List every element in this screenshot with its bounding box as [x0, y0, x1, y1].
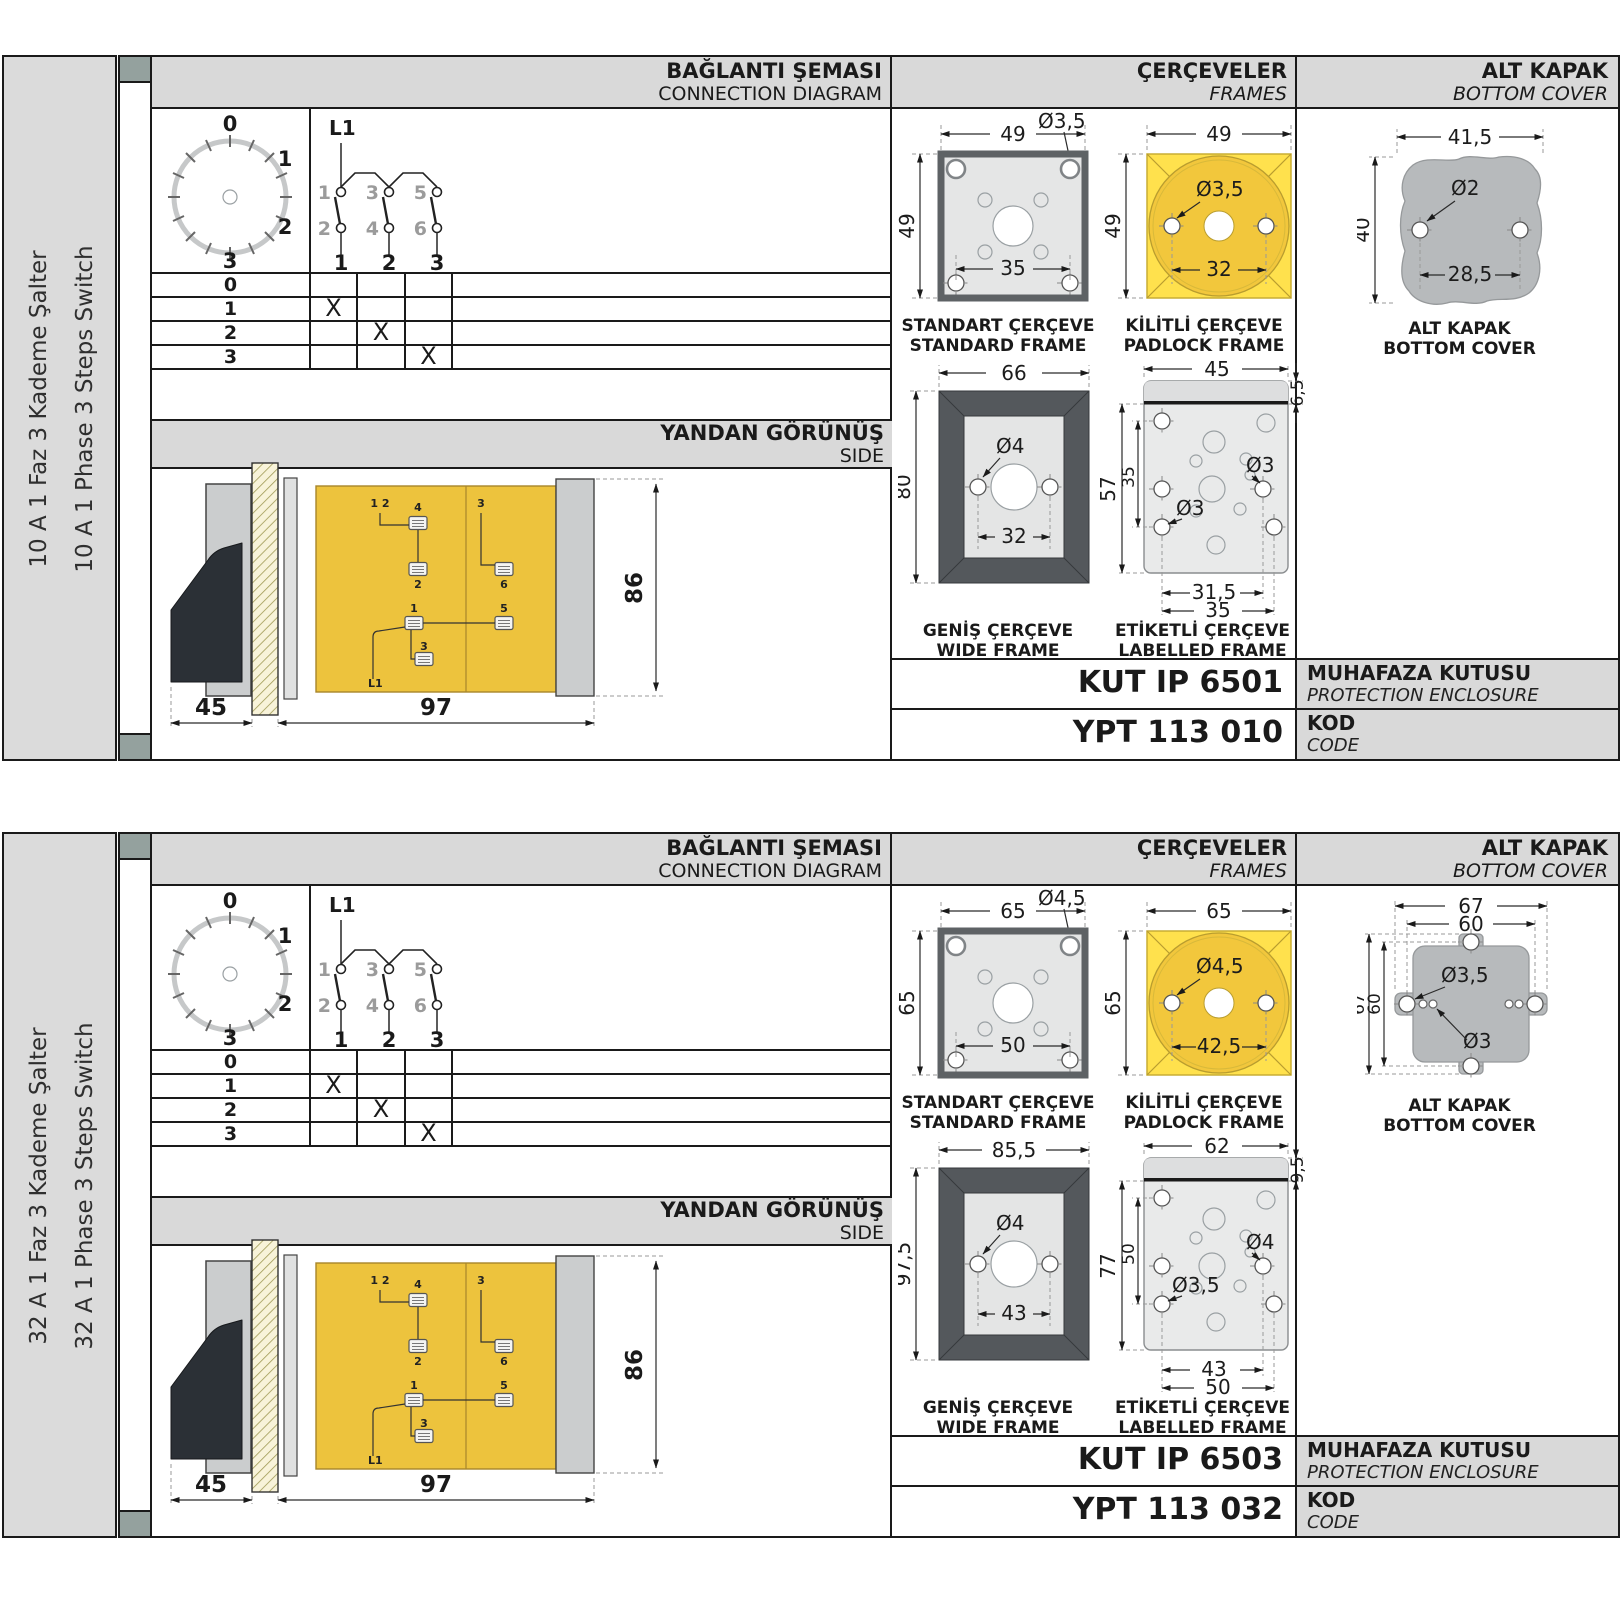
body-label-4: 4 [414, 1278, 422, 1291]
dim-width: 49 [1206, 122, 1231, 146]
dim-hole: Ø3,5 [1038, 112, 1086, 133]
dim-hole-bot: Ø3 [1176, 496, 1204, 520]
contact-3: 3 [430, 1028, 445, 1049]
terminal-5: 5 [414, 182, 427, 204]
dim-height: 49 [898, 213, 919, 238]
header-frames-tr: ÇERÇEVELER [892, 836, 1287, 861]
body-label-1: 1 [410, 602, 418, 615]
row-pos: 0 [152, 1051, 311, 1073]
contact-2: 2 [382, 251, 397, 272]
dim-span: 50 [1000, 1033, 1025, 1057]
header-frames: ÇERÇEVELER FRAMES [892, 59, 1287, 105]
wide-frame-drawing: 66 Ø4 80 32 [898, 357, 1098, 619]
side-view-drawing: 1 2 3 4 2 6 1 5 3 L1 86 45 97 [156, 461, 696, 757]
frame-caption-en: PADLOCK FRAME [1104, 1113, 1304, 1133]
dim-height: 86 [622, 572, 648, 604]
enclosure-code: KUT IP 6501 [890, 660, 1297, 708]
cover-caption-tr: ALT KAPAK [1357, 319, 1562, 339]
terminal-3: 3 [366, 182, 379, 204]
dim-span: 32 [1001, 524, 1026, 548]
binder-strip [118, 55, 152, 761]
standard-frame-block: 49 Ø3,5 49 35 STANDART ÇERÇEVESTANDARD F… [898, 112, 1098, 356]
dial-center [223, 190, 237, 204]
body-label-L1: L1 [368, 1454, 383, 1467]
dim-hole: Ø4,5 [1038, 889, 1086, 910]
panel-wall-hatch [252, 463, 278, 715]
dim-band: 6,5 [1288, 379, 1305, 406]
shaft-hole [1204, 988, 1234, 1018]
body-label-6: 6 [500, 578, 508, 591]
terminal-2: 2 [318, 995, 331, 1017]
code-label: KOD CODE [1297, 710, 1618, 759]
header-connection: BAĞLANTI ŞEMASI CONNECTION DIAGRAM [152, 59, 882, 105]
header-connection-en: CONNECTION DIAGRAM [152, 861, 882, 882]
sidebar: 10 A 1 Faz 3 Kademe Şalter 10 A 1 Phase … [2, 55, 117, 761]
side-title-tr: YANDAN GÖRÜNÜŞ [152, 1198, 884, 1223]
table-row: 3X [152, 1123, 892, 1147]
mark-2 [358, 1075, 406, 1097]
body-label-4: 4 [414, 501, 422, 514]
padlock-frame-drawing: 65 Ø4,5 65 42,5 [1104, 889, 1304, 1091]
registration-square-top [120, 57, 150, 83]
dim-height: 65 [898, 990, 919, 1015]
panel-wall-hatch [252, 1240, 278, 1492]
table-row: 0 [152, 1051, 892, 1075]
enclosure-row: KUT IP 6503 MUHAFAZA KUTUSU PROTECTION E… [890, 1435, 1618, 1485]
labelled-frame-block: 62 9,5 77 50 Ø4 Ø3,5 [1100, 1134, 1305, 1438]
row-pos: 3 [152, 346, 311, 368]
dim-width: 49 [1000, 122, 1025, 146]
switch-body [316, 1263, 556, 1469]
contact-1: 1 [334, 251, 349, 272]
dial-pos-0: 0 [223, 112, 238, 136]
body-label-3bot: 3 [420, 640, 428, 653]
phase-label: L1 [329, 893, 356, 917]
cover-caption-en: BOTTOM COVER [1357, 1116, 1562, 1136]
panel-main: BAĞLANTI ŞEMASI CONNECTION DIAGRAM ÇERÇE… [150, 55, 1620, 761]
dial-pos-1: 1 [278, 924, 293, 948]
body-label-5: 5 [500, 1379, 508, 1392]
end-plate [556, 1256, 594, 1473]
dial-pos-2: 2 [278, 992, 293, 1016]
label-band [1144, 1158, 1288, 1178]
switch-dial: 0 1 2 3 [152, 886, 309, 1049]
table-row: 1X [152, 298, 892, 322]
mark-1 [311, 274, 358, 296]
frame-caption-en: PADLOCK FRAME [1104, 336, 1304, 356]
dim-width: 65 [1206, 899, 1231, 923]
phase-label: L1 [329, 116, 356, 140]
panel-main: BAĞLANTI ŞEMASI CONNECTION DIAGRAM ÇERÇE… [150, 832, 1620, 1538]
dim-hole: Ø4,5 [1196, 954, 1244, 978]
mark-3 [406, 322, 453, 344]
dial-pos-1: 1 [278, 147, 293, 171]
enclosure-label-en: PROTECTION ENCLOSURE [1307, 685, 1618, 706]
wide-frame-block: 85,5 Ø4 97,5 43 GENİŞ ÇERÇEVEWIDE FRAME [898, 1134, 1098, 1438]
body-label-3top: 3 [477, 1274, 485, 1287]
dim-height: 77 [1100, 1253, 1120, 1278]
datasheet-page: 10 A 1 Faz 3 Kademe Şalter 10 A 1 Phase … [0, 0, 1623, 1623]
code-label-en: CODE [1307, 735, 1618, 756]
body-label-3top: 3 [477, 497, 485, 510]
dim-hole: Ø3,5 [1196, 177, 1244, 201]
body-label-12: 1 2 [370, 1274, 389, 1287]
cover-caption-en: BOTTOM COVER [1357, 339, 1562, 359]
mark-2: X [358, 322, 406, 344]
shaft-hole [1204, 211, 1234, 241]
connection-column: 0 1 2 3 L1 1 2 3 4 5 [152, 109, 892, 759]
registration-square-top [120, 834, 150, 860]
dim-hole-mid: Ø3 [1246, 453, 1274, 477]
product-title-en: 10 A 1 Phase 3 Steps Switch [66, 61, 104, 757]
frame-caption-tr: STANDART ÇERÇEVE [898, 316, 1098, 336]
product-title-en: 32 A 1 Phase 3 Steps Switch [66, 838, 104, 1534]
header-connection-tr: BAĞLANTI ŞEMASI [152, 836, 882, 861]
shaft-hole [991, 464, 1037, 510]
dim-depth-a: 45 [195, 1472, 227, 1498]
mark-2 [358, 1051, 406, 1073]
mark-2: X [358, 1099, 406, 1121]
frame-caption-tr: GENİŞ ÇERÇEVE [898, 1398, 1098, 1418]
switch-handle [171, 1320, 242, 1459]
label-band [1144, 381, 1288, 401]
enclosure-row: KUT IP 6501 MUHAFAZA KUTUSU PROTECTION E… [890, 658, 1618, 708]
terminal-4: 4 [366, 218, 379, 240]
wide-frame-block: 66 Ø4 80 32 GENİŞ ÇERÇEVEWIDE FRAME [898, 357, 1098, 661]
code-label-en: CODE [1307, 1512, 1618, 1533]
dim-span: 32 [1206, 257, 1231, 281]
contact-2: 2 [382, 1028, 397, 1049]
end-plate [556, 479, 594, 696]
dim-height: 97,5 [898, 1242, 915, 1287]
dim-span: 28,5 [1448, 262, 1493, 286]
dial-center [223, 967, 237, 981]
dim-width: 85,5 [992, 1138, 1037, 1162]
mark-3 [406, 1051, 453, 1073]
contact-1: 1 [334, 1028, 349, 1049]
mark-3 [406, 1075, 453, 1097]
header-frames: ÇERÇEVELER FRAMES [892, 836, 1287, 882]
dim-hole: Ø4 [996, 434, 1024, 458]
dim-height-inner: 60 [1365, 993, 1385, 1015]
order-code: YPT 113 010 [890, 710, 1297, 759]
shaft-hole [993, 983, 1033, 1023]
enclosure-label-tr: MUHAFAZA KUTUSU [1307, 662, 1618, 685]
row-pos: 3 [152, 1123, 311, 1145]
frame-caption-tr: STANDART ÇERÇEVE [898, 1093, 1098, 1113]
frame-caption-tr: GENİŞ ÇERÇEVE [898, 621, 1098, 641]
dim-span-outer: 35 [1205, 598, 1230, 619]
frame-caption-tr: KİLİTLİ ÇERÇEVE [1104, 316, 1304, 336]
panel-10a: 10 A 1 Faz 3 Kademe Şalter 10 A 1 Phase … [2, 55, 1620, 761]
dial-pos-3: 3 [223, 249, 238, 272]
body-label-2: 2 [414, 578, 422, 591]
header-bar: BAĞLANTI ŞEMASI CONNECTION DIAGRAM ÇERÇE… [152, 834, 1618, 884]
labelled-frame-drawing: 45 6,5 57 35 Ø3 Ø3 [1100, 357, 1305, 619]
table-row: 1X [152, 1075, 892, 1099]
padlock-frame-drawing: 49 Ø3,5 49 32 [1104, 112, 1304, 314]
front-plate [284, 1255, 297, 1476]
dim-inner-height: 50 [1119, 1243, 1139, 1265]
sidebar: 32 A 1 Faz 3 Kademe Şalter 32 A 1 Phase … [2, 832, 117, 1538]
header-cover-en: BOTTOM COVER [1299, 861, 1608, 882]
contact-3: 3 [430, 251, 445, 272]
header-cover-tr: ALT KAPAK [1299, 836, 1608, 861]
bottom-cover-block: 67 60 67 60 Ø3,5 Ø3 [1357, 894, 1562, 1136]
header-connection: BAĞLANTI ŞEMASI CONNECTION DIAGRAM [152, 836, 882, 882]
dim-band: 9,5 [1288, 1156, 1305, 1183]
cover-caption-tr: ALT KAPAK [1357, 1096, 1562, 1116]
terminal-1: 1 [318, 959, 331, 981]
labelled-frame-drawing: 62 9,5 77 50 Ø4 Ø3,5 [1100, 1134, 1305, 1396]
dim-height: 86 [622, 1349, 648, 1381]
dim-span-outer: 50 [1205, 1375, 1230, 1396]
code-row: YPT 113 010 KOD CODE [890, 708, 1618, 759]
mark-1 [311, 1099, 358, 1121]
switch-dial: 0 1 2 3 [152, 109, 309, 272]
mark-2 [358, 298, 406, 320]
dim-hole-mid: Ø4 [1246, 1230, 1274, 1254]
table-row: 0 [152, 274, 892, 298]
body-label-12: 1 2 [370, 497, 389, 510]
bottom-cover-block: 41,5 Ø2 40 28,5 ALT KAPAKBOTTOM COVER [1357, 117, 1562, 359]
terminal-4: 4 [366, 995, 379, 1017]
table-row: 2X [152, 1099, 892, 1123]
panel-32a: 32 A 1 Faz 3 Kademe Şalter 32 A 1 Phase … [2, 832, 1620, 1538]
mark-2 [358, 274, 406, 296]
switch-handle [171, 543, 242, 682]
body-label-6: 6 [500, 1355, 508, 1368]
mark-3: X [406, 1123, 453, 1145]
mark-3: X [406, 346, 453, 368]
mark-1 [311, 346, 358, 368]
labelled-frame-block: 45 6,5 57 35 Ø3 Ø3 [1100, 357, 1305, 661]
body-label-5: 5 [500, 602, 508, 615]
frame-caption-en: STANDARD FRAME [898, 336, 1098, 356]
code-label: KOD CODE [1297, 1487, 1618, 1536]
enclosure-label-tr: MUHAFAZA KUTUSU [1307, 1439, 1618, 1462]
binder-strip [118, 832, 152, 1538]
dim-inner-height: 35 [1119, 466, 1139, 488]
mark-2 [358, 1123, 406, 1145]
dim-width: 62 [1204, 1134, 1229, 1158]
dim-height: 80 [898, 474, 915, 499]
row-pos: 2 [152, 1099, 311, 1121]
wide-frame-drawing: 85,5 Ø4 97,5 43 [898, 1134, 1098, 1396]
mark-2 [358, 346, 406, 368]
code-label-tr: KOD [1307, 1489, 1618, 1512]
dim-hole-small: Ø3 [1463, 1029, 1491, 1053]
side-view-drawing: 1 2 3 4 2 6 1 5 3 L1 86 45 97 [156, 1238, 696, 1534]
body-label-2: 2 [414, 1355, 422, 1368]
terminal-3: 3 [366, 959, 379, 981]
row-pos: 1 [152, 1075, 311, 1097]
mark-1 [311, 1123, 358, 1145]
front-plate [284, 478, 297, 699]
product-title-tr: 32 A 1 Faz 3 Kademe Şalter [20, 838, 58, 1534]
dim-span: 42,5 [1197, 1034, 1242, 1058]
code-label-tr: KOD [1307, 712, 1618, 735]
enclosure-label-en: PROTECTION ENCLOSURE [1307, 1462, 1618, 1483]
product-title-tr: 10 A 1 Faz 3 Kademe Şalter [20, 61, 58, 757]
frame-caption-tr: KİLİTLİ ÇERÇEVE [1104, 1093, 1304, 1113]
standard-frame-drawing: 65 Ø4,5 65 50 [898, 889, 1098, 1091]
terminal-6: 6 [414, 218, 427, 240]
dim-width: 65 [1000, 899, 1025, 923]
contact-schematic: L1 1 2 3 4 5 6 1 2 3 [311, 886, 892, 1049]
dim-height: 65 [1104, 990, 1125, 1015]
header-frames-en: FRAMES [892, 84, 1287, 105]
mark-1: X [311, 298, 358, 320]
terminal-1: 1 [318, 182, 331, 204]
frame-caption-tr: ETİKETLİ ÇERÇEVE [1100, 621, 1305, 641]
row-pos: 2 [152, 322, 311, 344]
row-pos: 0 [152, 274, 311, 296]
dim-depth-b: 97 [420, 1472, 452, 1498]
dim-depth-a: 45 [195, 695, 227, 721]
header-frames-tr: ÇERÇEVELER [892, 59, 1287, 84]
registration-square-bottom [120, 733, 150, 759]
order-code: YPT 113 032 [890, 1487, 1297, 1536]
padlock-frame-block: 65 Ø4,5 65 42,5 KİLİTLİ ÇERÇEVEPADLOCK F… [1104, 889, 1304, 1133]
body-label-3bot: 3 [420, 1417, 428, 1430]
dim-hole: Ø2 [1451, 176, 1479, 200]
dim-hole-big: Ø3,5 [1441, 963, 1489, 987]
shaft-hole [991, 1241, 1037, 1287]
enclosure-code: KUT IP 6503 [890, 1437, 1297, 1485]
dim-width: 41,5 [1448, 125, 1493, 149]
dim-height: 40 [1357, 217, 1374, 242]
frame-caption-tr: ETİKETLİ ÇERÇEVE [1100, 1398, 1305, 1418]
mark-1 [311, 1051, 358, 1073]
standard-frame-block: 65 Ø4,5 65 50 STANDART ÇERÇEVESTANDARD F… [898, 889, 1098, 1133]
body-label-1: 1 [410, 1379, 418, 1392]
header-cover-tr: ALT KAPAK [1299, 59, 1608, 84]
connection-column: 0 1 2 3 L1 1 2 3 4 5 [152, 886, 892, 1536]
row-pos: 1 [152, 298, 311, 320]
dim-span: 43 [1001, 1301, 1026, 1325]
dim-depth-b: 97 [420, 695, 452, 721]
contact-schematic: L1 1 2 3 4 5 6 1 2 3 [311, 109, 892, 272]
header-cover: ALT KAPAK BOTTOM COVER [1299, 836, 1608, 882]
table-row: 3X [152, 346, 892, 370]
standard-frame-drawing: 49 Ø3,5 49 35 [898, 112, 1098, 314]
mark-3 [406, 274, 453, 296]
code-row: YPT 113 032 KOD CODE [890, 1485, 1618, 1536]
dial-pos-2: 2 [278, 215, 293, 239]
dim-span: 35 [1000, 256, 1025, 280]
header-connection-tr: BAĞLANTI ŞEMASI [152, 59, 882, 84]
enclosure-label: MUHAFAZA KUTUSU PROTECTION ENCLOSURE [1297, 660, 1618, 708]
dim-height: 49 [1104, 213, 1125, 238]
mark-3 [406, 1099, 453, 1121]
dim-width: 66 [1001, 361, 1026, 385]
mark-1 [311, 322, 358, 344]
terminal-5: 5 [414, 959, 427, 981]
side-title-tr: YANDAN GÖRÜNÜŞ [152, 421, 884, 446]
header-frames-en: FRAMES [892, 861, 1287, 882]
dial-pos-3: 3 [223, 1026, 238, 1049]
terminal-2: 2 [318, 218, 331, 240]
bottom-cover-drawing: 41,5 Ø2 40 28,5 [1357, 117, 1562, 317]
switch-body [316, 486, 556, 692]
registration-square-bottom [120, 1510, 150, 1536]
frame-caption-en: STANDARD FRAME [898, 1113, 1098, 1133]
mark-3 [406, 298, 453, 320]
dim-hole-bot: Ø3,5 [1172, 1273, 1220, 1297]
body-label-L1: L1 [368, 677, 383, 690]
dim-width: 45 [1204, 357, 1229, 381]
header-cover: ALT KAPAK BOTTOM COVER [1299, 59, 1608, 105]
table-row: 2X [152, 322, 892, 346]
enclosure-label: MUHAFAZA KUTUSU PROTECTION ENCLOSURE [1297, 1437, 1618, 1485]
header-cover-en: BOTTOM COVER [1299, 84, 1608, 105]
dim-height: 57 [1100, 476, 1120, 501]
terminal-6: 6 [414, 995, 427, 1017]
header-connection-en: CONNECTION DIAGRAM [152, 84, 882, 105]
bottom-cover-drawing: 67 60 67 60 Ø3,5 Ø3 [1357, 894, 1562, 1094]
header-bar: BAĞLANTI ŞEMASI CONNECTION DIAGRAM ÇERÇE… [152, 57, 1618, 107]
shaft-hole [993, 206, 1033, 246]
dial-pos-0: 0 [223, 889, 238, 913]
mark-1: X [311, 1075, 358, 1097]
padlock-frame-block: 49 Ø3,5 49 32 KİLİTLİ ÇERÇEVEPADLOCK FRA… [1104, 112, 1304, 356]
dim-hole: Ø4 [996, 1211, 1024, 1235]
